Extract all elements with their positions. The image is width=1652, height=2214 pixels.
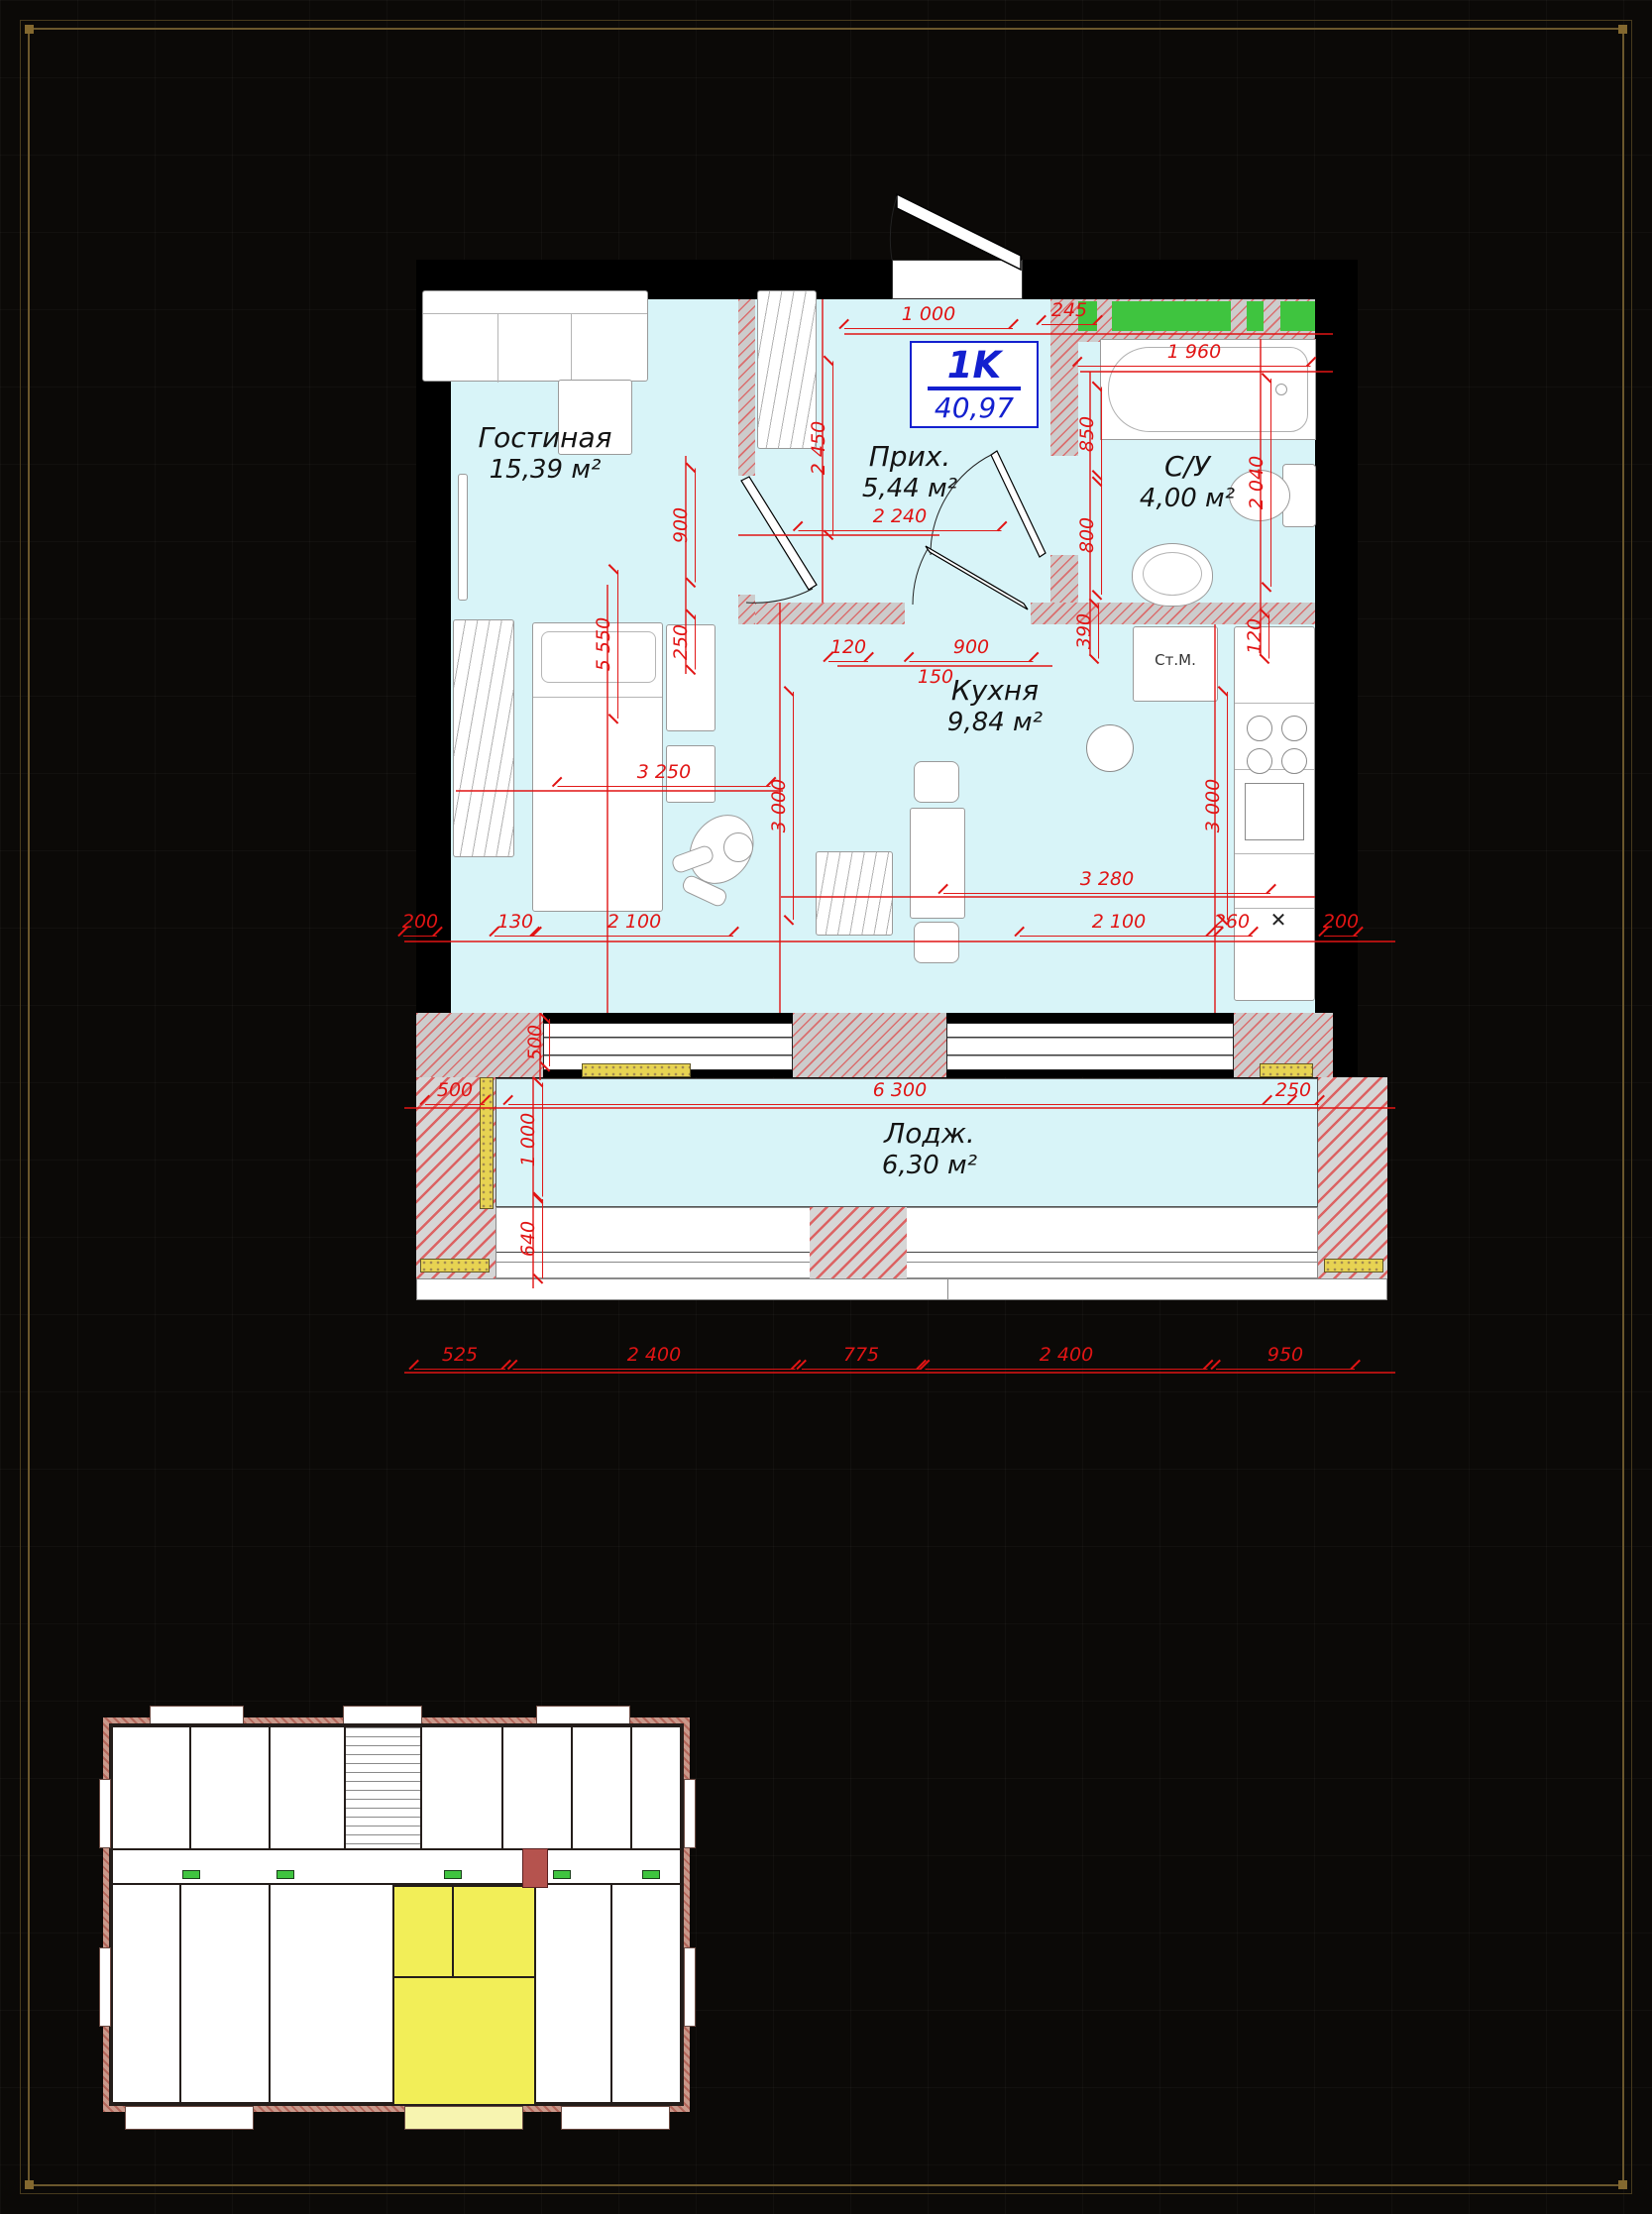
room-label-living: Гостиная 15,39 м² [479,421,612,487]
room-label-kitchen: Кухня 9,84 м² [947,674,1043,739]
vent-mark [444,1870,462,1879]
window [946,1023,1234,1070]
blueprint-page: 1K 40,97 Гостиная 15,39 м² Прих. 5,44 м²… [0,0,1652,2214]
corridor-wall [109,1848,684,1850]
interior-wall [630,1723,632,1848]
bed [532,622,663,912]
room-area: 15,39 м² [479,455,612,487]
chair [914,922,959,963]
interior-wall [501,1723,503,1848]
washbasin [1132,543,1213,607]
vent-mark [553,1870,571,1879]
frame-corner [1618,2180,1627,2189]
unit-card: 1K 40,97 [910,341,1039,428]
bay [99,1779,111,1848]
interior-wall [269,1885,271,2106]
nightstand [666,745,716,803]
loggia-window-band [496,1207,1318,1278]
unit-type-label: 1K [947,347,1001,384]
entrance-porch [343,1706,422,1725]
stove-burner [1281,748,1307,774]
cabinet [816,851,893,936]
wall-hall-kitchen [755,603,905,624]
room-area: 9,84 м² [947,708,1043,739]
room-area: 6,30 м² [882,1151,977,1182]
unit-card-rule [928,387,1020,390]
insulation-strip [1260,1063,1313,1077]
highlighted-loggia [404,2106,523,2130]
frame-corner [25,2180,34,2189]
overview-plan [95,1700,710,2156]
sofa [422,290,648,382]
interior-wall [179,1885,181,2106]
insulation-strip [582,1063,691,1077]
frame-corner [25,25,34,34]
room-label-bathroom: С/У 4,00 м² [1140,450,1235,515]
balcony [561,2106,670,2130]
wall-pier [793,1013,946,1077]
loggia-pier [810,1207,907,1278]
vent-shaft [1112,301,1231,331]
room-area: 5,44 м² [862,474,957,505]
bay [684,1779,696,1848]
insulation-strip [480,1077,494,1209]
wall-living-hall [738,299,755,476]
oven [1245,783,1304,840]
wardrobe [453,619,514,857]
frame-corner [1618,25,1627,34]
wall-pier [416,1013,543,1077]
balcony [536,1706,630,1725]
balcony [150,1706,244,1725]
bay [99,1947,111,2027]
vent-mark [276,1870,294,1879]
wall-living-hall [738,595,755,624]
vent-shaft [1247,301,1264,331]
room-label-hall: Прих. 5,44 м² [862,440,957,505]
interior-wall [610,1885,612,2106]
vent-shaft [1280,301,1315,331]
wall-hall-bathroom [1050,299,1078,456]
stairwell [344,1727,422,1848]
room-name: Гостиная [479,421,612,455]
vent-mark [642,1870,660,1879]
stove-burner [1281,716,1307,741]
highlighted-apartment [392,1885,536,2106]
stove-burner [1247,716,1272,741]
washing-machine-label: Ст.М. [1155,651,1196,669]
vent-block-red [522,1848,548,1888]
interior-wall [189,1723,191,1848]
vent-mark [182,1870,200,1879]
room-area: 4,00 м² [1140,484,1235,515]
insulation-strip [420,1259,490,1273]
balcony [125,2106,254,2130]
insulation-strip [1324,1259,1383,1273]
round-stool [1086,724,1134,772]
nightstand [666,624,716,731]
room-name: С/У [1140,450,1235,484]
stove-burner [1247,748,1272,774]
toilet-bowl [1229,470,1290,521]
person-figure [666,805,761,914]
room-name: Кухня [947,674,1043,708]
wardrobe [757,290,817,449]
tv [458,474,468,601]
room-label-loggia: Лодж. 6,30 м² [882,1117,977,1182]
room-name: Прих. [862,440,957,474]
interior-wall [571,1723,573,1848]
entrance-opening [892,260,1023,299]
bay [684,1947,696,2027]
unit-area-value: 40,97 [935,394,1014,422]
sink-mark: ✕ [1270,908,1287,932]
chair [914,761,959,803]
vent-shaft [1078,301,1097,331]
outer-sill [416,1278,1387,1300]
bathtub [1100,339,1316,440]
dining-table [910,808,965,919]
room-name: Лодж. [882,1117,977,1151]
interior-wall [269,1723,271,1848]
